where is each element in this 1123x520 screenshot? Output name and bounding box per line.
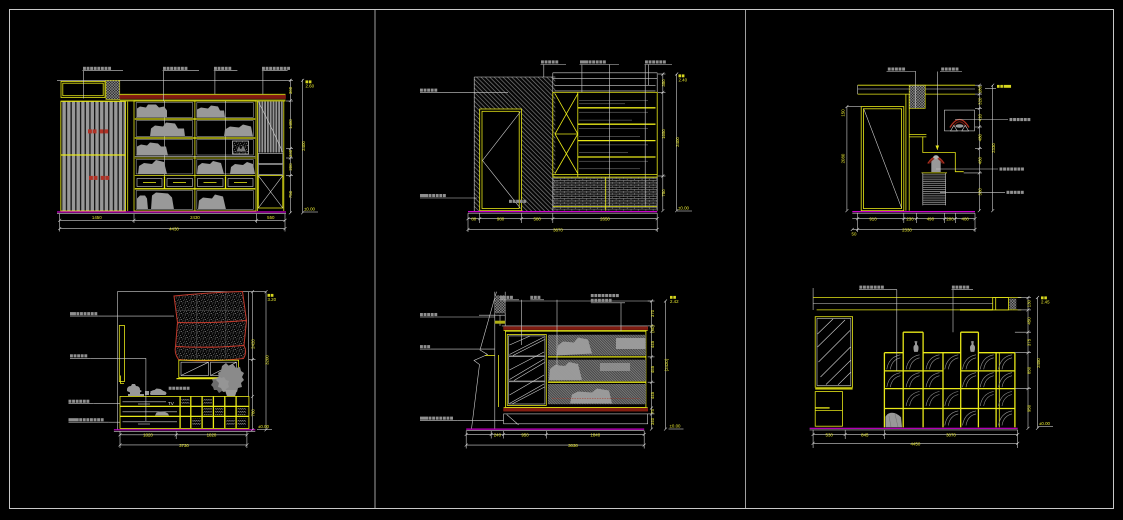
svg-text:750: 750 [661,189,666,197]
svg-text:340: 340 [650,417,655,425]
svg-text:2.60: 2.60 [306,84,315,89]
svg-text:3730: 3730 [179,443,189,448]
svg-text:370: 370 [650,309,655,317]
svg-text:2400: 2400 [675,137,680,147]
svg-text:2080: 2080 [841,153,846,163]
svg-text:490: 490 [927,217,935,222]
svg-text:180: 180 [978,85,983,93]
svg-text:530: 530 [826,432,834,437]
svg-text:2650: 2650 [600,217,610,222]
svg-text:350: 350 [661,79,666,87]
svg-text:200: 200 [946,217,954,222]
svg-text:950: 950 [521,432,529,437]
svg-text:465: 465 [650,365,655,373]
svg-text:2.42: 2.42 [670,299,679,304]
svg-text:1820: 1820 [143,433,153,438]
svg-text:2330: 2330 [902,227,912,232]
svg-text:3670: 3670 [553,227,563,232]
svg-text:3200: 3200 [264,355,269,365]
svg-text:2430: 2430 [190,215,200,220]
svg-text:200: 200 [288,163,293,171]
svg-text:400: 400 [962,217,970,222]
svg-text:550: 550 [267,215,275,220]
svg-text:±0.00: ±0.00 [304,207,316,212]
svg-text:75: 75 [650,409,655,414]
svg-text:150: 150 [841,109,846,117]
svg-text:1650: 1650 [661,129,666,139]
svg-text:360: 360 [288,86,293,94]
svg-text:460: 460 [978,156,983,164]
svg-text:850: 850 [1026,366,1031,374]
svg-text:320: 320 [978,97,983,105]
svg-text:2330: 2330 [991,143,996,153]
svg-text:950: 950 [1026,404,1031,412]
svg-text:80: 80 [471,217,476,222]
svg-text:3.20: 3.20 [268,297,277,302]
svg-text:380: 380 [978,188,983,196]
svg-text:445: 445 [650,391,655,399]
svg-text:4430: 4430 [169,227,179,232]
svg-text:4450: 4450 [911,441,921,446]
svg-text:580: 580 [534,217,542,222]
svg-text:±0.00: ±0.00 [678,206,690,211]
svg-text:330: 330 [288,149,293,157]
svg-text:910: 910 [869,217,877,222]
svg-text:2.45: 2.45 [1041,300,1050,305]
svg-text:±0.00: ±0.00 [258,424,270,429]
svg-text:375: 375 [1026,338,1031,346]
svg-text:2400: 2400 [301,141,306,151]
svg-text:2.40: 2.40 [679,78,688,83]
svg-text:3070: 3070 [946,432,956,437]
svg-text:(50): (50) [650,325,655,333]
svg-text:445: 445 [650,340,655,348]
svg-text:±0.00: ±0.00 [1039,421,1051,426]
svg-text:450: 450 [1026,317,1031,325]
svg-text:780: 780 [251,409,256,417]
svg-text:1450: 1450 [92,215,102,220]
svg-text:845: 845 [861,432,869,437]
svg-text:410: 410 [978,113,983,121]
svg-text:2450: 2450 [1036,358,1041,368]
svg-text:50: 50 [852,232,857,237]
svg-text:480: 480 [978,133,983,141]
svg-text:130: 130 [1026,299,1031,307]
svg-text:980: 980 [497,217,505,222]
svg-text:2420: 2420 [251,339,256,349]
svg-text:240: 240 [494,432,502,437]
svg-text:230: 230 [906,217,914,222]
svg-text:3030: 3030 [568,443,578,448]
svg-text:TV: TV [168,401,175,406]
svg-text:(2420): (2420) [664,358,669,371]
svg-text:1840: 1840 [590,432,600,437]
svg-text:750: 750 [288,190,293,198]
svg-text:1480: 1480 [288,119,293,129]
svg-text:1820: 1820 [207,433,217,438]
svg-text:±0.00: ±0.00 [670,424,682,429]
